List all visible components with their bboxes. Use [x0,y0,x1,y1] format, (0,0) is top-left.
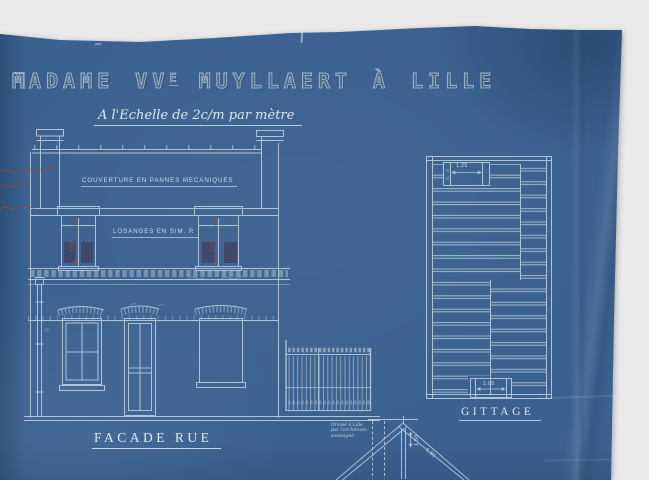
facade-label: FACADE RUE [92,430,221,449]
roof-covering-note: COUVERTURE EN PANNES MECANIQUES [81,177,237,187]
dim-upper-window-right: 2.50 [210,241,216,252]
joist-plan [427,157,552,399]
title-superscript: E [169,71,177,86]
dim-gittage-top: 1.25 [456,163,468,169]
title-part1: MADAME VV [12,69,169,93]
scale-note: A l'Echelle de 2c/m par mètre [94,108,302,126]
fence-palisade [286,340,371,411]
dim-gittage-bottom: 1.00 [483,381,495,387]
scanned-blueprint-page: { "document": { "kind": "architectural b… [0,0,649,480]
wall-finish-note: LOSANGES EN SIM. R [112,228,198,238]
page-title: MADAME VVE MUYLLAERT À LILLE [12,69,496,93]
dim-upper-window-left: 1.50 [70,241,76,252]
blueprint-paper: MADAME VVE MUYLLAERT À LILLE A l'Echelle… [0,0,649,480]
blueprint-paper-wrap: MADAME VVE MUYLLAERT À LILLE A l'Echelle… [0,0,649,480]
architect-note: Dressé à Lille par l'architecte soussign… [331,423,367,439]
joist-plan-label: GITTAGE [459,406,541,421]
paper-fold-vertical [570,28,586,480]
dim-truss-rise: 1.50 [414,434,420,446]
architect-note-line3: soussigné [331,434,367,439]
title-part2: MUYLLAERT À LILLE [178,69,497,93]
